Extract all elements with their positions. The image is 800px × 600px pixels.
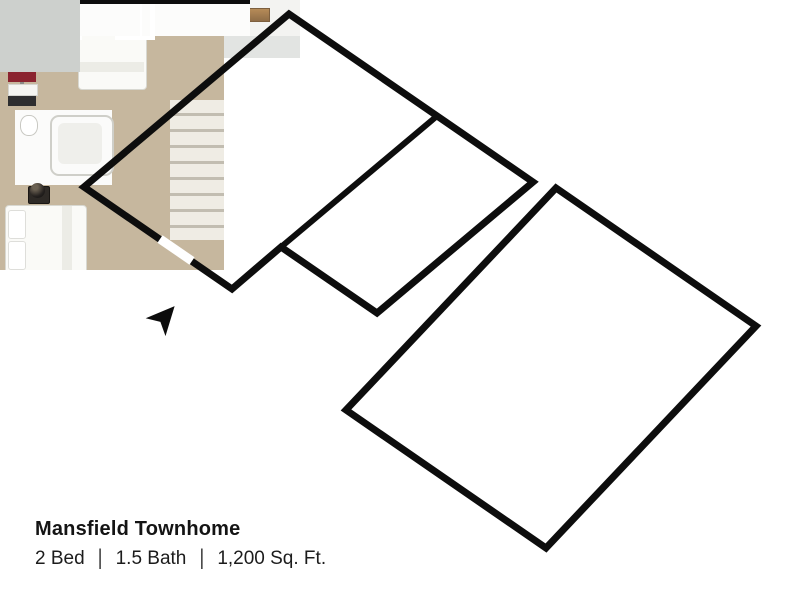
plan-specs: 2 Bed | 1.5 Bath | 1,200 Sq. Ft. bbox=[35, 548, 326, 570]
spec-separator: | bbox=[98, 546, 103, 571]
entry-direction-arrow-icon: ➤ bbox=[136, 290, 191, 344]
hanging-clothes bbox=[8, 72, 36, 82]
bed2-pillow bbox=[8, 241, 26, 270]
bed2-blanket-fold bbox=[62, 206, 72, 274]
spec-separator: | bbox=[199, 546, 204, 571]
floorplan-scene: extra bbox=[0, 0, 800, 600]
bed1-blanket-fold bbox=[79, 62, 144, 72]
spec-area: 1,200 Sq. Ft. bbox=[217, 548, 326, 570]
table-lamp bbox=[30, 183, 45, 198]
toilet bbox=[20, 115, 38, 136]
stairs-second-floor bbox=[170, 100, 230, 240]
caption-block: Mansfield Townhome 2 Bed | 1.5 Bath | 1,… bbox=[35, 518, 326, 570]
hanging-clothes bbox=[8, 84, 38, 96]
hanging-clothes bbox=[8, 96, 36, 106]
bed2-pillow bbox=[8, 210, 26, 239]
plan-title: Mansfield Townhome bbox=[35, 518, 326, 541]
entry-walkway-pad bbox=[0, 0, 80, 72]
spec-beds: 2 Bed bbox=[35, 548, 85, 570]
spec-baths: 1.5 Bath bbox=[116, 548, 187, 570]
bathtub-basin bbox=[58, 123, 102, 164]
